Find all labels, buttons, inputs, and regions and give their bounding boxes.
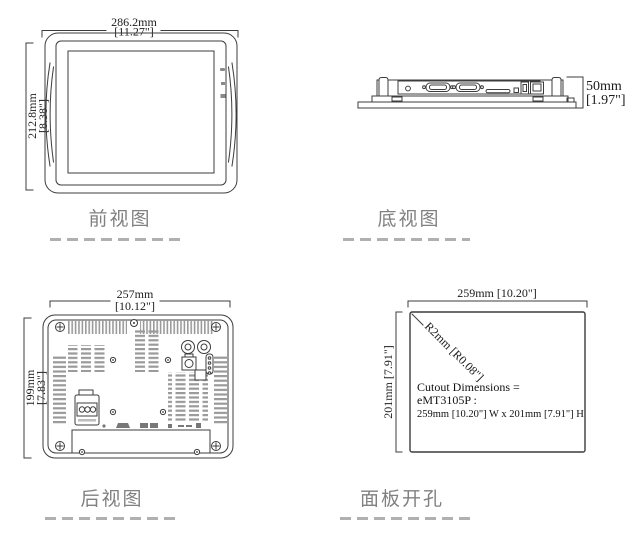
bottom-connectors xyxy=(406,82,544,94)
cutout-height-dim: 201mm [7.91"] xyxy=(381,345,395,419)
cutout-height-dimension-line xyxy=(396,312,402,452)
rear-view-label: 后视图 xyxy=(42,484,182,511)
serial-port-icon xyxy=(453,83,484,92)
bottom-view-label: 底视图 xyxy=(339,204,479,231)
usb-port-icon xyxy=(521,82,529,94)
rear-height-dim: 199mm[7.83"] xyxy=(23,369,48,406)
bottom-depth-dimension-line xyxy=(567,77,583,108)
front-view-label: 前视图 xyxy=(50,204,190,231)
cutout-width-dimension-line xyxy=(408,301,587,307)
sd-slot-icon xyxy=(486,90,510,93)
front-screen xyxy=(68,51,214,173)
rear-connector-bay xyxy=(72,430,210,455)
switch-icon xyxy=(514,88,519,93)
serial-port-icon xyxy=(423,83,454,92)
ethernet-port-icon xyxy=(531,82,544,94)
rear-side-vent xyxy=(53,356,66,424)
rear-top-vent xyxy=(67,320,127,334)
rear-bottom-port-icons xyxy=(102,423,201,428)
cutout-view-label: 面板开孔 xyxy=(322,484,482,511)
rear-vent-grid xyxy=(68,345,105,372)
front-led-indicator-icons xyxy=(220,68,226,98)
cutout-note-line1: Cutout Dimensions = xyxy=(417,380,520,394)
rear-view-underline xyxy=(45,517,180,520)
rear-width-dim-inch: [10.12"] xyxy=(115,299,155,313)
cutout-view-underline xyxy=(340,517,473,520)
bottom-depth-dim-mm: 50mm xyxy=(586,79,622,94)
dimensional-drawing-sheet: 286.2mm [11.27"] 212.8mm[8.38"] xyxy=(0,0,640,550)
rear-vent-grid xyxy=(133,330,161,372)
cutout-note-line2: eMT3105P : xyxy=(417,393,477,407)
cutout-radius-leader-line xyxy=(412,314,423,325)
power-terminal-icon xyxy=(75,390,99,425)
bottom-depth-dim-inch: [1.97"] xyxy=(586,93,626,108)
front-width-dim-inch: [11.27"] xyxy=(114,25,153,39)
bottom-view-underline xyxy=(343,238,470,241)
reset-hole-icon xyxy=(406,86,411,91)
cutout-radius-dim: R2mm [R0.08"] xyxy=(422,319,487,384)
rear-side-vent xyxy=(214,356,227,424)
cutout-width-dim: 259mm [10.20"] xyxy=(457,286,537,300)
cutout-note-line3: 259mm [10.20"] W x 201mm [7.91"] H xyxy=(417,409,584,420)
front-device-outline xyxy=(45,33,237,193)
front-view-underline xyxy=(50,238,183,241)
